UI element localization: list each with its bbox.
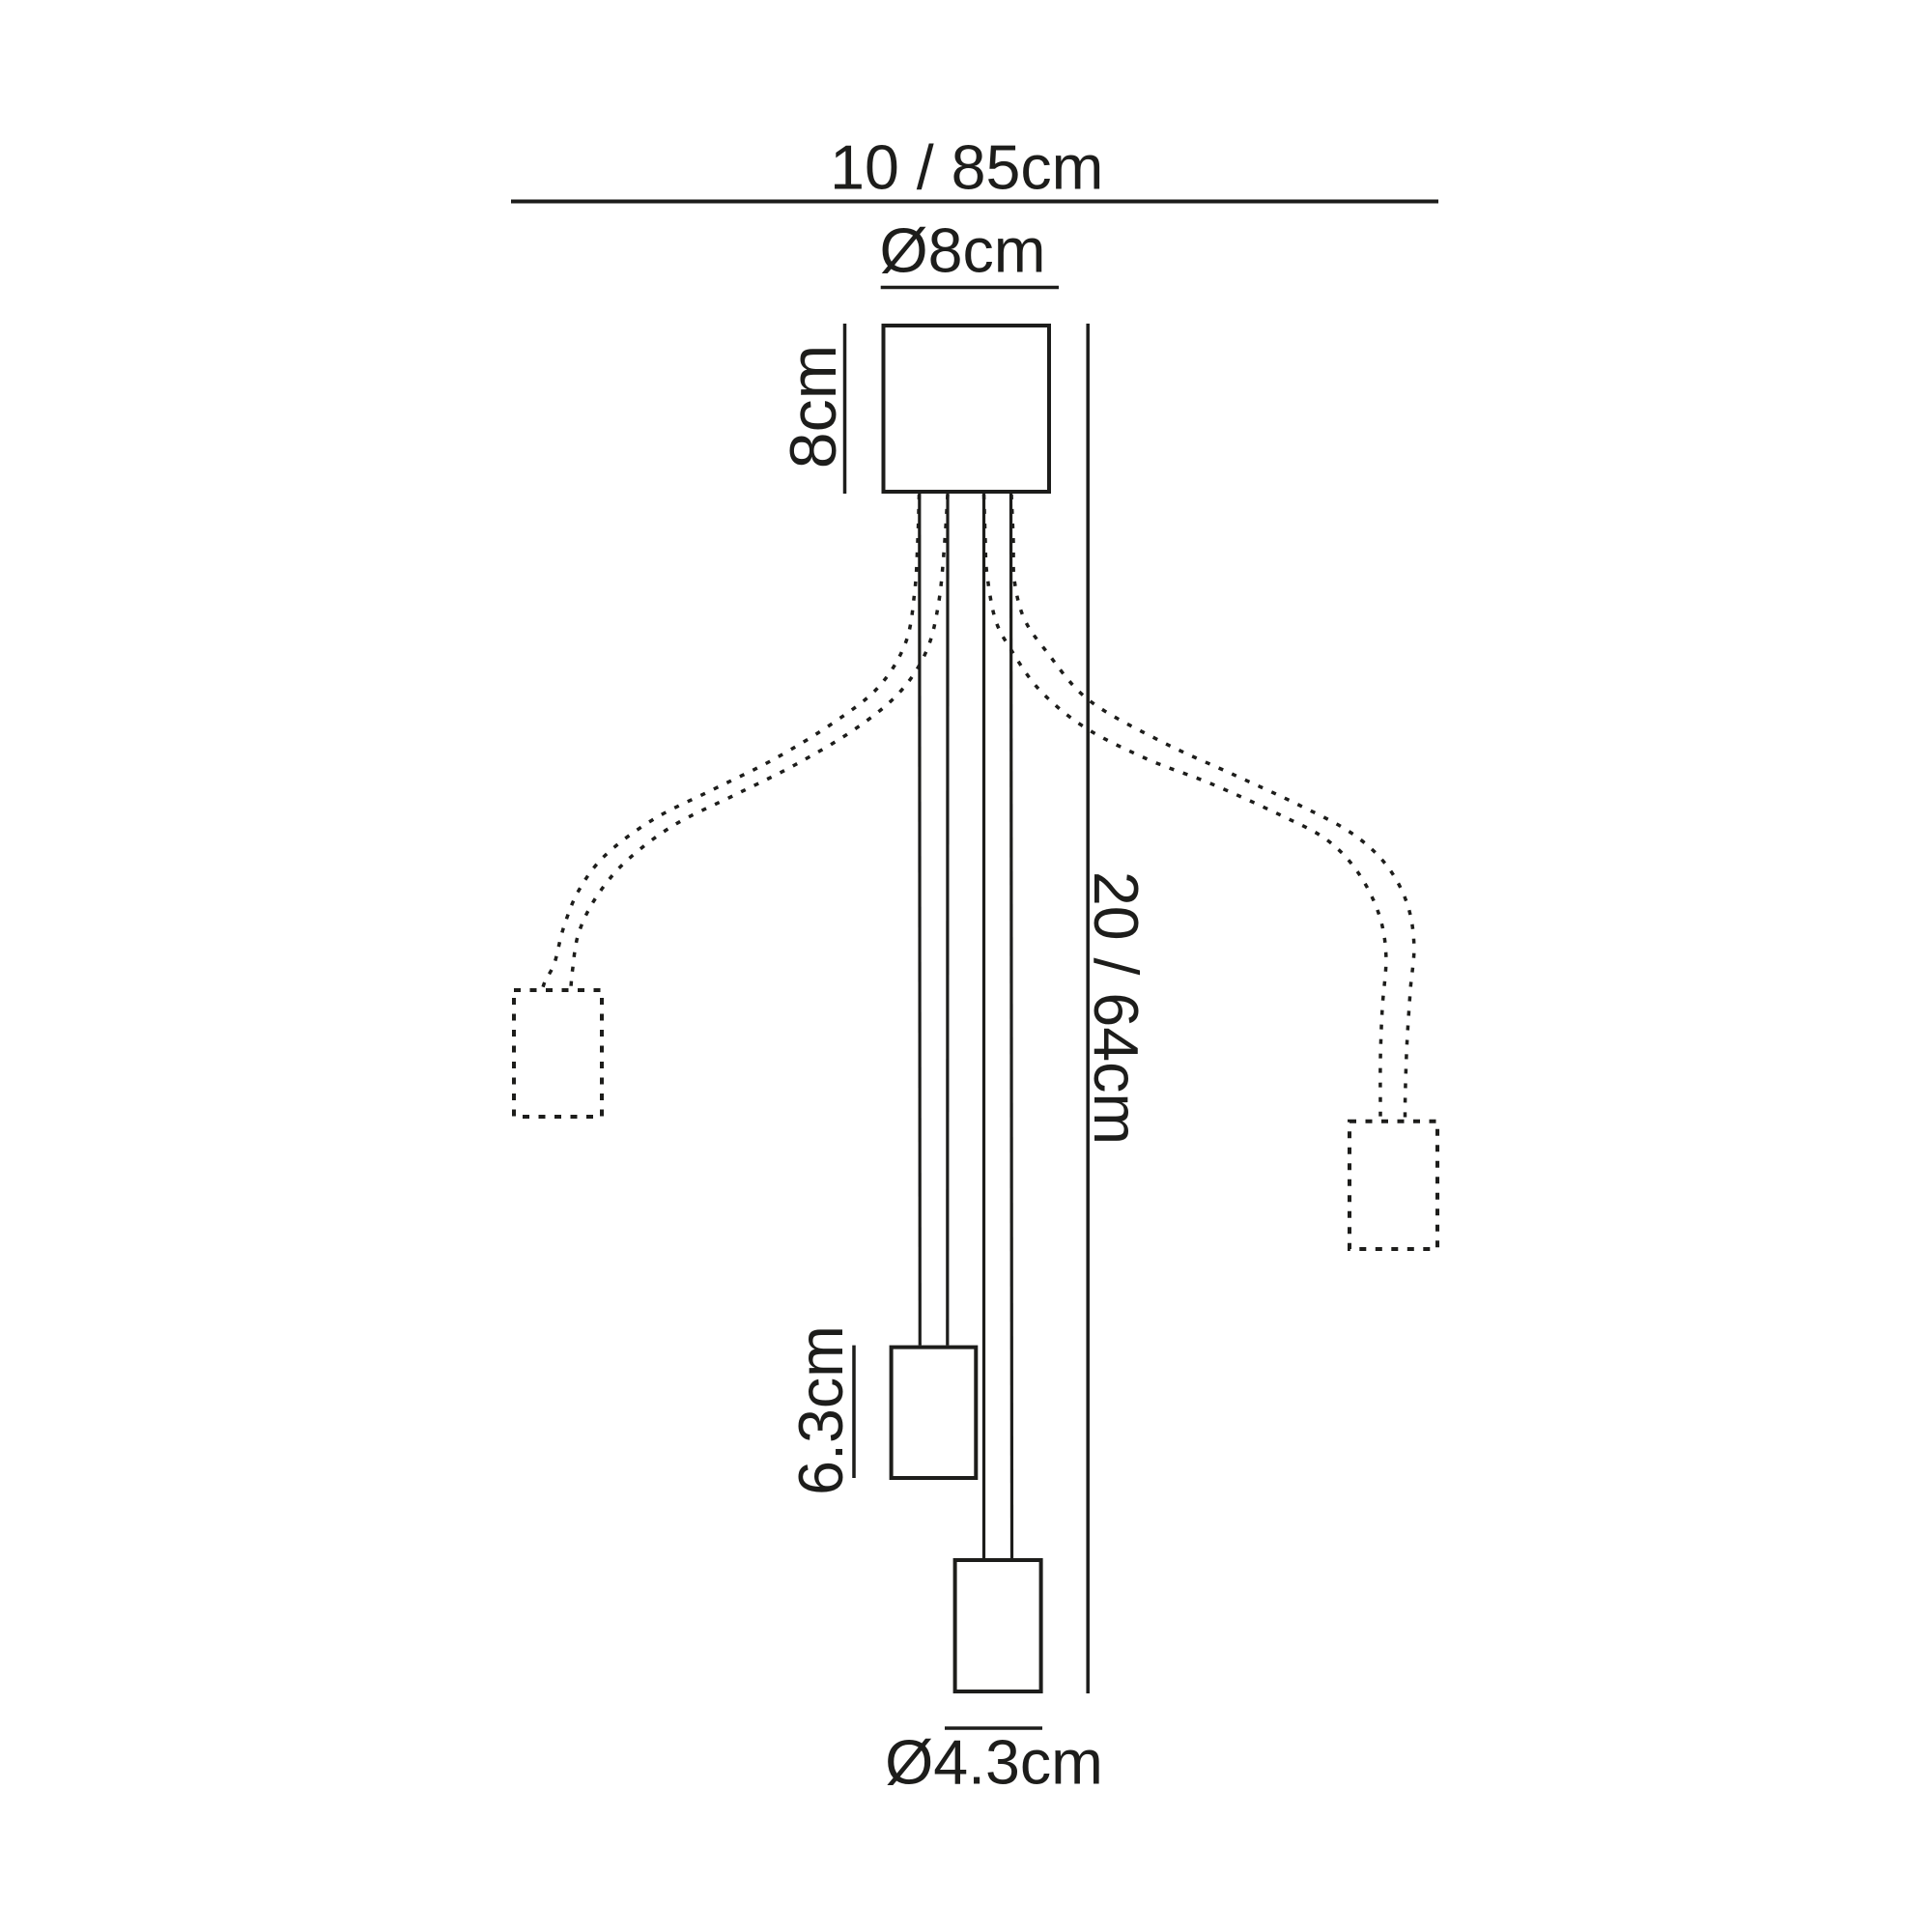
svg-text:20 / 64cm: 20 / 64cm — [1081, 871, 1151, 1145]
svg-text:10 / 85cm: 10 / 85cm — [830, 133, 1103, 203]
svg-text:Ø4.3cm: Ø4.3cm — [885, 1728, 1103, 1798]
svg-text:8cm: 8cm — [777, 345, 850, 469]
svg-text:6.3cm: 6.3cm — [786, 1325, 856, 1495]
svg-text:Ø8cm: Ø8cm — [879, 216, 1045, 286]
